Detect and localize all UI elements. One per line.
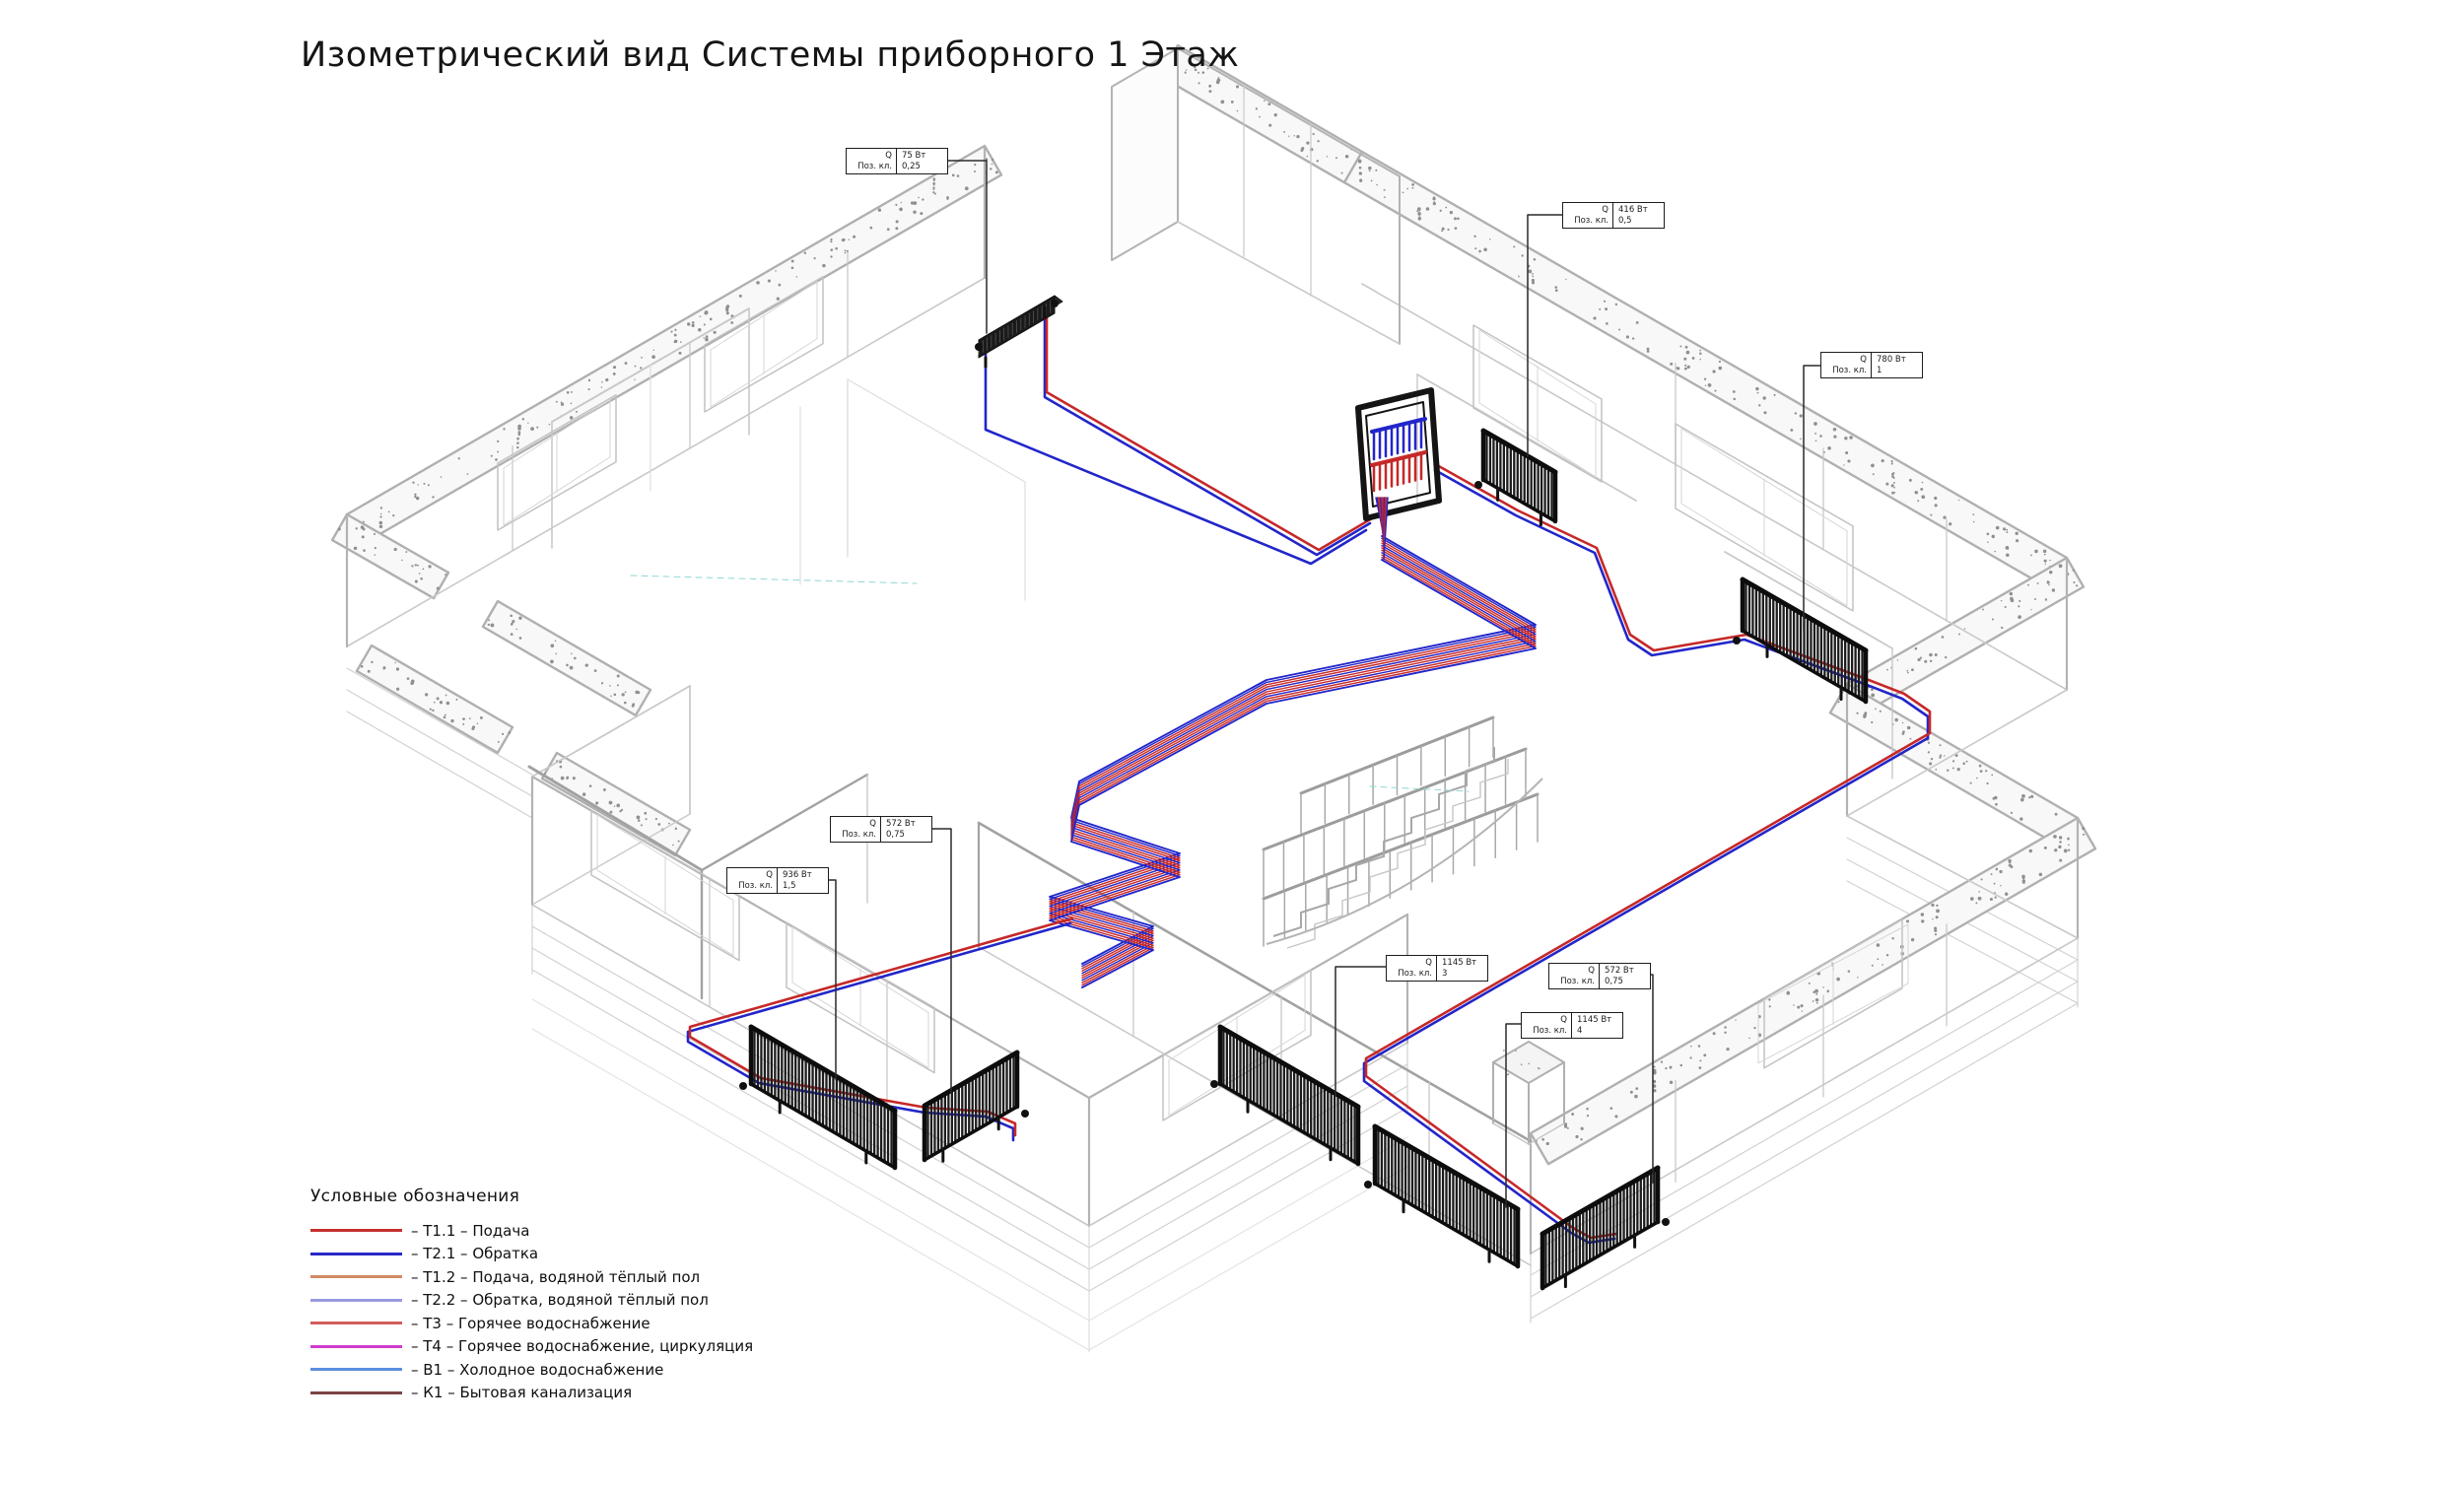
wall-speckle xyxy=(1880,711,1882,712)
wall-speckle xyxy=(480,716,483,719)
wall-speckle xyxy=(1483,248,1487,252)
wall-speckle xyxy=(549,424,551,426)
wall-speckle xyxy=(1944,755,1945,756)
wall-speckle xyxy=(430,709,432,711)
wall-speckle xyxy=(444,716,446,719)
wall-speckle xyxy=(392,514,394,516)
wall-speckle xyxy=(1921,919,1924,922)
wall-speckle xyxy=(571,391,573,393)
wall-speckle xyxy=(1934,929,1937,932)
wall-speckle xyxy=(2009,861,2011,863)
wall-speckle xyxy=(1909,479,1912,482)
wall-speckle xyxy=(1800,438,1802,440)
wall-speckle xyxy=(374,533,376,535)
legend-item: – Т3 – Горячее водоснабжение xyxy=(310,1312,753,1335)
wall-speckle xyxy=(1886,954,1888,956)
callout-pos-value: 4 xyxy=(1577,1026,1620,1037)
wall-speckle xyxy=(411,680,415,684)
wall-speckle xyxy=(488,624,490,626)
wall-speckle xyxy=(1939,744,1941,746)
wall-speckle xyxy=(1907,726,1911,730)
wall-speckle xyxy=(2047,581,2050,584)
wall-speckle xyxy=(425,693,428,696)
underfloor-supply-pipe xyxy=(1050,550,1536,978)
column-speckle xyxy=(1521,1063,1523,1065)
callout-fields: QПоз. кл. xyxy=(1563,203,1613,228)
wall-speckle xyxy=(609,801,613,805)
wall-speckle xyxy=(1609,1107,1612,1110)
wall-speckle xyxy=(1928,742,1930,744)
wall-line xyxy=(1362,284,2067,690)
wall-speckle xyxy=(632,705,635,708)
wall-speckle xyxy=(1733,390,1736,393)
wall-speckle xyxy=(362,535,365,538)
wall-speckle xyxy=(1532,273,1534,275)
wall-speckle xyxy=(1426,207,1430,211)
wall-speckle xyxy=(1885,483,1888,486)
wall-speckle xyxy=(1996,526,2000,530)
wall-speckle xyxy=(2045,564,2046,565)
legend-label: – Т1.2 – Подача, водяной тёплый пол xyxy=(411,1268,700,1286)
wall-speckle xyxy=(640,367,642,369)
wall-speckle xyxy=(1208,90,1211,93)
wall-band xyxy=(1830,684,2078,847)
wall-speckle xyxy=(2052,588,2055,591)
wall-speckle xyxy=(1800,414,1803,417)
legend-item: – Т2.2 – Обратка, водяной тёплый пол xyxy=(310,1289,753,1313)
wall-speckle xyxy=(1665,1067,1667,1069)
wall-speckle xyxy=(1307,156,1309,158)
column-top xyxy=(1493,1042,1564,1083)
wall-speckle xyxy=(394,662,395,663)
column-speckle xyxy=(1515,1051,1517,1052)
wall-speckle xyxy=(423,483,425,485)
wall-speckle xyxy=(574,657,577,660)
wall-speckle xyxy=(1605,307,1608,310)
wall-speckle xyxy=(2021,794,2025,798)
grid-line xyxy=(631,576,917,583)
wall-speckle xyxy=(1882,964,1883,966)
wall-speckle xyxy=(637,815,641,819)
wall-speckle xyxy=(1843,464,1844,465)
legend-line-t4 xyxy=(310,1345,402,1348)
wall-speckle xyxy=(1949,522,1951,525)
wall-speckle xyxy=(1952,767,1954,769)
wall-speckle xyxy=(1719,361,1721,363)
wall-speckle xyxy=(1581,1127,1584,1130)
wall-speckle xyxy=(2015,532,2018,535)
wall-speckle xyxy=(1208,85,1211,88)
callout-values: 780 Вт1 xyxy=(1872,353,1922,377)
wall-speckle xyxy=(1952,760,1954,762)
wall-speckle xyxy=(920,212,923,215)
wall-speckle xyxy=(1359,167,1362,170)
wall-speckle xyxy=(965,186,969,190)
wall-speckle xyxy=(1991,873,1993,875)
wall-speckle xyxy=(1375,170,1377,171)
wall-speckle xyxy=(1947,770,1949,772)
wall-speckle xyxy=(634,378,635,379)
wall-speckle xyxy=(1762,396,1765,399)
wall-speckle xyxy=(1793,1004,1795,1006)
wall-speckle xyxy=(2011,865,2014,868)
wall-speckle xyxy=(603,788,606,791)
wall-speckle xyxy=(1813,1000,1814,1002)
pipe-convector-supply xyxy=(1047,307,1372,550)
wall-speckle xyxy=(657,823,660,826)
wall-speckle xyxy=(414,494,416,496)
wall-speckle xyxy=(519,637,522,640)
wall-speckle xyxy=(1689,1056,1691,1058)
wall-speckle xyxy=(703,337,705,339)
wall-line xyxy=(532,905,1089,1226)
wall-speckle xyxy=(396,667,399,670)
legend-line-t21 xyxy=(310,1253,402,1255)
wall-speckle xyxy=(516,446,518,448)
wall-speckle xyxy=(2055,813,2058,816)
wall-band xyxy=(1344,152,2067,588)
wall-speckle xyxy=(1445,207,1447,209)
wall-speckle xyxy=(2049,571,2053,575)
legend-line-t3 xyxy=(310,1322,402,1324)
wall-line xyxy=(979,947,1531,1265)
wall-speckle xyxy=(517,427,521,431)
wall-speckle xyxy=(516,441,519,444)
wall-speckle xyxy=(1930,660,1932,662)
legend-label: – К1 – Бытовая канализация xyxy=(411,1384,632,1401)
wall-speckle xyxy=(1565,279,1566,280)
wall-speckle xyxy=(2003,527,2006,530)
wall-speckle xyxy=(641,824,643,826)
underfloor-return-pipe xyxy=(1050,536,1536,964)
wall-speckle xyxy=(1274,113,1277,116)
wall-speckle xyxy=(407,677,410,680)
wall-speckle xyxy=(913,210,916,213)
wall-speckle xyxy=(437,587,440,590)
callout-fields: QПоз. кл. xyxy=(1387,956,1437,981)
wall-speckle xyxy=(354,547,357,550)
wall-speckle xyxy=(1411,187,1413,189)
callout-power-value: 936 Вт xyxy=(783,870,826,881)
callout-q-label: Q xyxy=(849,151,892,162)
power-callout-bottom-1: QПоз. кл. 1145 Вт3 xyxy=(1386,955,1488,982)
wall-speckle xyxy=(1447,229,1449,231)
wall-speckle xyxy=(845,252,847,254)
wall-speckle xyxy=(1699,350,1701,352)
wall-speckle xyxy=(1359,171,1362,174)
wall-speckle xyxy=(589,784,592,787)
wall-speckle xyxy=(1726,1048,1729,1051)
wall-speckle xyxy=(613,373,616,375)
wall-speckle xyxy=(2044,847,2047,849)
wall-speckle xyxy=(1335,157,1337,159)
wall-speckle xyxy=(1679,346,1681,348)
wall-speckle xyxy=(1996,868,1999,871)
wall-band xyxy=(347,146,1001,543)
wall-speckle xyxy=(1980,770,1983,773)
wall-speckle xyxy=(1894,492,1896,494)
wall-speckle xyxy=(1945,656,1947,658)
wall-speckle xyxy=(491,455,493,457)
callout-q-label: Q xyxy=(833,819,876,830)
wall-speckle xyxy=(585,663,588,666)
callout-pos-label: Поз. кл. xyxy=(1565,216,1608,227)
wall-speckle xyxy=(1571,1113,1574,1116)
wall-speckle xyxy=(674,334,677,337)
wall-speckle xyxy=(2043,550,2046,553)
wall-speckle xyxy=(1478,250,1481,253)
wall-speckle xyxy=(668,823,670,825)
legend-item: – В1 – Холодное водоснабжение xyxy=(310,1358,753,1382)
wall-speckle xyxy=(901,202,902,203)
wall-speckle xyxy=(2029,849,2032,852)
callout-fields: QПоз. кл. xyxy=(1821,353,1872,377)
power-callout-hall: QПоз. кл. 416 Вт0,5 xyxy=(1562,202,1665,229)
wall-speckle xyxy=(1847,459,1850,462)
wall-speckle xyxy=(1976,778,1978,780)
wall-speckle xyxy=(576,411,578,413)
drawing-canvas: Изометрический вид Системы приборного 1 … xyxy=(0,0,2464,1492)
wall-speckle xyxy=(1630,1091,1633,1094)
wall-speckle xyxy=(1800,1004,1803,1007)
wall-speckle xyxy=(428,565,431,568)
legend-item: – Т4 – Горячее водоснабжение, циркуляция xyxy=(310,1335,753,1359)
stair-steps xyxy=(1273,747,1494,936)
column-speckle xyxy=(1503,1050,1505,1051)
wall-speckle xyxy=(1827,989,1829,991)
wall-speckle xyxy=(653,350,654,351)
wall-speckle xyxy=(1979,765,1982,768)
wall-speckle xyxy=(692,321,695,324)
callout-leader xyxy=(1335,967,1388,1096)
wall-speckle xyxy=(2039,873,2042,876)
wall-line xyxy=(848,379,1025,482)
wall-speckle xyxy=(1699,353,1702,356)
callout-q-label: Q xyxy=(1551,966,1595,977)
wall-speckle xyxy=(1982,609,1984,611)
wall-speckle xyxy=(2059,859,2062,862)
wall-speckle xyxy=(1198,82,1199,84)
wall-speckle xyxy=(641,357,643,359)
wall-speckle xyxy=(644,812,647,815)
wall-speckle xyxy=(1836,978,1840,982)
wall-line xyxy=(1417,374,1636,501)
wall-speckle xyxy=(2022,877,2025,880)
wall-speckle xyxy=(1317,140,1319,142)
wall-speckle xyxy=(2068,844,2070,846)
wall-speckle xyxy=(2048,584,2049,585)
wall-speckle xyxy=(1264,101,1266,102)
wall-speckle xyxy=(1958,634,1960,636)
power-callout-convector: QПоз. кл. 75 Вт0,25 xyxy=(846,148,948,174)
wall-speckle xyxy=(1924,660,1927,663)
wall-speckle xyxy=(1936,905,1938,907)
wall-speckle xyxy=(1972,513,1974,515)
wall-speckle xyxy=(1936,916,1939,918)
wall-speckle xyxy=(899,208,903,212)
wall-speckle xyxy=(1685,346,1688,349)
wall-speckle xyxy=(371,661,373,663)
wall-speckle xyxy=(1359,179,1362,182)
wall-speckle xyxy=(1216,81,1220,85)
wall-speckle xyxy=(1856,712,1858,714)
wall-speckle xyxy=(1403,192,1404,194)
wall-speckle xyxy=(2054,848,2057,851)
callout-fields: QПоз. кл. xyxy=(1522,1013,1572,1038)
wall-speckle xyxy=(779,284,782,287)
wall-speckle xyxy=(469,717,471,719)
wall-speckle xyxy=(1294,135,1296,137)
legend-item: – К1 – Бытовая канализация xyxy=(310,1382,753,1405)
wall-speckle xyxy=(675,828,677,830)
callout-q-label: Q xyxy=(1823,355,1867,366)
wall-speckle xyxy=(2059,841,2062,844)
wall-speckle xyxy=(2018,615,2021,619)
wall-speckle xyxy=(415,564,417,566)
wall-speckle xyxy=(518,617,521,620)
wall-speckle xyxy=(843,238,845,240)
wall-speckle xyxy=(995,170,998,173)
wall-speckle xyxy=(1417,212,1421,216)
wall-speckle xyxy=(1994,551,1996,553)
wall-speckle xyxy=(1708,383,1712,387)
wall-speckle xyxy=(363,528,366,531)
wall-speckle xyxy=(1970,897,1974,901)
drawing-title: Изометрический вид Системы приборного 1 … xyxy=(301,35,1239,75)
wall-speckle xyxy=(1690,1046,1692,1048)
wall-speckle xyxy=(550,644,554,647)
wall-speckle xyxy=(1816,1002,1818,1004)
plinth-line xyxy=(1531,1003,2078,1319)
wall-speckle xyxy=(1920,657,1922,659)
wall-speckle xyxy=(609,685,611,687)
wall-speckle xyxy=(1902,732,1905,735)
wall-speckle xyxy=(1699,1066,1702,1069)
wall-speckle xyxy=(1957,769,1959,771)
power-callout-right: QПоз. кл. 780 Вт1 xyxy=(1820,352,1923,378)
wall-speckle xyxy=(1626,335,1629,338)
wall-speckle xyxy=(1384,196,1386,198)
legend-item: – Т1.2 – Подача, водяной тёплый пол xyxy=(310,1265,753,1289)
wall-speckle xyxy=(1911,938,1914,941)
callout-power-value: 416 Вт xyxy=(1618,205,1662,216)
wall-speckle xyxy=(517,434,520,437)
wall-speckle xyxy=(1647,350,1650,353)
wall-speckle xyxy=(1450,211,1453,214)
callout-power-value: 1145 Вт xyxy=(1577,1015,1620,1026)
wall-speckle xyxy=(1237,110,1239,112)
wall-speckle xyxy=(375,547,376,549)
wall-speckle xyxy=(777,297,780,300)
wall-speckle xyxy=(2019,817,2022,820)
wall-speckle xyxy=(380,513,381,514)
wall-speckle xyxy=(1692,357,1695,360)
wall-speckle xyxy=(895,204,897,206)
wall-speckle xyxy=(522,418,524,420)
wall-speckle xyxy=(624,702,627,705)
wall-speckle xyxy=(849,238,850,239)
wall-speckle xyxy=(1554,286,1557,289)
wall-speckle xyxy=(1917,500,1919,502)
wall-speckle xyxy=(588,388,590,390)
wall-speckle xyxy=(2058,846,2061,848)
valve xyxy=(1733,637,1741,644)
wall-speckle xyxy=(895,227,898,230)
callout-values: 1145 Вт3 xyxy=(1437,956,1487,981)
wall-speckle xyxy=(450,719,453,722)
wall-speckle xyxy=(952,174,955,177)
wall-speckle xyxy=(2034,598,2036,600)
wall-speckle xyxy=(2037,582,2039,584)
wall-speckle xyxy=(432,710,434,712)
wall-speckle xyxy=(2011,599,2015,603)
wall-speckle xyxy=(1457,217,1460,220)
valve xyxy=(1021,1110,1029,1118)
wall-speckle xyxy=(791,266,794,269)
wall-speckle xyxy=(2005,893,2008,896)
wall-speckle xyxy=(2016,539,2019,542)
wall-speckle xyxy=(614,805,615,806)
wall-speckle xyxy=(595,801,598,804)
wall-speckle xyxy=(2068,848,2070,850)
wall-speckle xyxy=(2006,529,2008,531)
wall-speckle xyxy=(918,197,920,199)
callout-fields: QПоз. кл. xyxy=(727,868,778,893)
wall-speckle xyxy=(1914,491,1918,495)
wall-speckle xyxy=(622,693,625,696)
wall-speckle xyxy=(814,257,816,259)
wall-speckle xyxy=(594,669,597,672)
wall-speckle xyxy=(1857,977,1858,978)
wall-speckle xyxy=(1713,1032,1716,1035)
wall-speckle xyxy=(1735,1019,1736,1020)
wall-speckle xyxy=(1871,721,1873,723)
wall-speckle xyxy=(401,560,403,562)
wall-speckle xyxy=(422,569,424,571)
wall-speckle xyxy=(361,665,364,668)
wall-speckle xyxy=(1432,197,1435,200)
wall-speckle xyxy=(704,323,706,325)
wall-speckle xyxy=(2073,581,2075,583)
stair-railing xyxy=(1264,794,1538,899)
wall-speckle xyxy=(1958,500,1959,501)
wall-speckle xyxy=(495,458,498,461)
wall-speckle xyxy=(1999,870,2002,873)
wall-speckle xyxy=(671,331,673,333)
wall-speckle xyxy=(1920,488,1923,491)
wall-speckle xyxy=(2005,606,2007,608)
wall-speckle xyxy=(1891,484,1894,487)
callout-pos-value: 1,5 xyxy=(783,881,826,892)
wall-speckle xyxy=(394,548,397,551)
callout-pos-value: 1 xyxy=(1877,366,1920,376)
wall-speckle xyxy=(1703,1053,1706,1056)
wall-speckle xyxy=(1943,515,1946,518)
wall-speckle xyxy=(502,733,504,735)
wall-speckle xyxy=(511,623,513,626)
wall-speckle xyxy=(1635,1087,1638,1090)
wall-speckle xyxy=(2010,592,2013,595)
legend-label: – Т1.1 – Подача xyxy=(411,1222,529,1240)
legend-line-k1 xyxy=(310,1391,402,1394)
wall-speckle xyxy=(446,702,450,706)
wall-speckle xyxy=(1932,918,1933,919)
wall-speckle xyxy=(1634,1095,1638,1099)
wall-speckle xyxy=(417,484,418,485)
wall-speckle xyxy=(1704,378,1706,380)
wall-speckle xyxy=(434,702,436,704)
wall-speckle xyxy=(570,666,574,670)
